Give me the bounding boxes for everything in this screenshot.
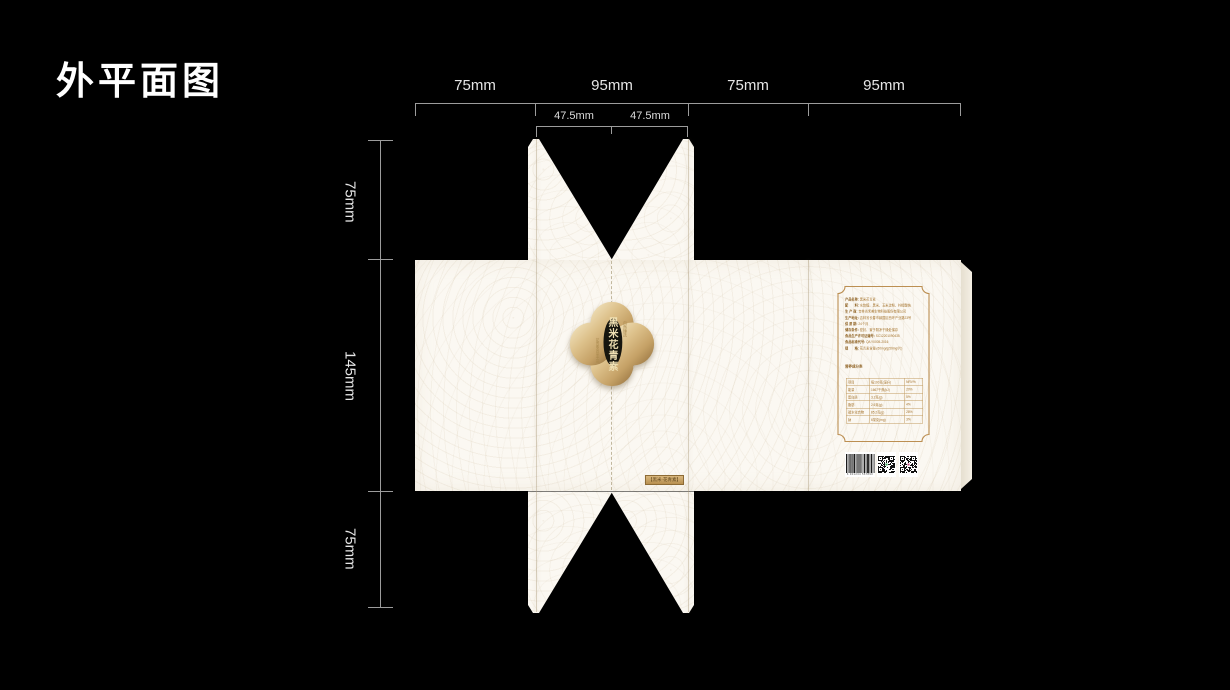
sub-ruler-line xyxy=(536,126,688,127)
table-cell: 能量 xyxy=(846,386,869,394)
table-cell: 28% xyxy=(904,408,922,416)
info-value: 吉林省禾美生物科技股份有限公司 xyxy=(858,310,906,314)
info-value: SC12201090435 xyxy=(876,335,900,339)
info-label: 规 格: xyxy=(845,347,859,351)
table-cell: 2.6克(g) xyxy=(869,401,904,409)
qr-code-icon xyxy=(899,452,918,477)
info-value: 水饴糖、黑米、玉米淀粉、柠檬酸钠 xyxy=(860,304,911,308)
sub-ruler-tick xyxy=(536,126,537,137)
info-value: 花青素含量≥50mg/g(50mg/片) xyxy=(860,347,903,351)
info-label: 配 料: xyxy=(845,304,859,308)
logo-product-name: 黑米花青素 xyxy=(603,316,620,372)
dim-label-47-5mm: 47.5mm xyxy=(620,110,680,122)
info-value: 24个月 xyxy=(858,322,868,326)
top-flap-right-triangle xyxy=(611,139,694,261)
dim-label-145mm-left: 145mm xyxy=(340,340,360,412)
info-value: 密封、置于阴凉干燥处保存 xyxy=(860,329,898,333)
fold-line xyxy=(688,139,689,612)
bottom-flap-left-triangle xyxy=(528,490,613,613)
info-label: 保 质 期: xyxy=(845,322,857,326)
glue-flap xyxy=(961,262,972,489)
table-cell: 项目 xyxy=(846,378,869,386)
table-cell: NRV% xyxy=(904,378,922,386)
top-ruler-tick xyxy=(960,103,961,116)
front-bottom-gold-label: 【黑米·花青素】 xyxy=(645,475,684,485)
table-cell: 3.2克(g) xyxy=(869,393,904,401)
dim-label-95mm: 95mm xyxy=(844,77,924,94)
sub-ruler-tick xyxy=(611,126,612,134)
dieline-proof-sheet: 外平面图 75mm 95mm 75mm 95mm 47.5mm 47.5mm 7… xyxy=(0,0,1230,690)
product-info-block: 产品名称: 黑米花青素 配 料: 水饴糖、黑米、玉米淀粉、柠檬酸钠 生 产 商:… xyxy=(845,297,925,357)
info-value: Q/LY0005-2016 xyxy=(866,341,888,345)
dim-label-75mm: 75mm xyxy=(708,77,788,94)
left-ruler-tick xyxy=(368,607,393,608)
info-label: 储存条件: xyxy=(845,329,859,333)
table-cell: 蛋白质 xyxy=(846,393,869,401)
logo-side-text-left: 花青素含量丰富 xyxy=(596,338,600,368)
info-label: 生产地址: xyxy=(845,316,859,320)
info-value: 吉林省长春市绿园区西环产业路23号 xyxy=(860,316,911,320)
barcode-bars-icon xyxy=(845,454,875,473)
fold-line xyxy=(536,139,537,612)
table-row: 能量 1667千焦(kJ) 20% xyxy=(846,386,923,394)
dim-label-75mm-left: 75mm xyxy=(340,517,360,581)
left-ruler-tick xyxy=(368,491,393,492)
left-ruler-tick xyxy=(368,259,393,260)
table-row: 蛋白质 3.2克(g) 5% xyxy=(846,393,923,401)
sub-ruler-tick xyxy=(687,126,688,137)
table-row: 脂肪 2.6克(g) 4% xyxy=(846,401,923,409)
nutrition-title-wrap: 营养成分表 xyxy=(845,364,1005,374)
info-label: 生 产 商: xyxy=(845,310,857,314)
top-ruler-tick xyxy=(808,103,809,116)
table-cell: 85.2克(g) xyxy=(869,408,904,416)
info-line: 规 格: 花青素含量≥50mg/g(50mg/片) xyxy=(845,346,930,352)
table-cell: 5% xyxy=(904,393,922,401)
table-cell: 1667千焦(kJ) xyxy=(869,386,904,394)
top-ruler-tick xyxy=(688,103,689,116)
dim-label-95mm: 95mm xyxy=(572,77,652,94)
table-cell: 6毫克(mg) xyxy=(869,416,904,424)
dim-label-75mm: 75mm xyxy=(435,77,515,94)
table-cell: 4% xyxy=(904,401,922,409)
fold-line xyxy=(808,260,809,491)
left-ruler-tick xyxy=(368,140,393,141)
nutrition-title: 营养成分表 xyxy=(845,364,925,369)
table-row: 钠 6毫克(mg) 3% xyxy=(846,416,923,424)
barcode-digits: 6 901234 567890 xyxy=(845,473,875,476)
info-label: 食品标准代号: xyxy=(845,341,865,345)
top-flap-left-triangle xyxy=(528,139,613,261)
info-label: 食品生产许可证编号: xyxy=(845,335,875,339)
table-cell: 脂肪 xyxy=(846,401,869,409)
top-ruler-tick xyxy=(415,103,416,116)
table-cell: 钠 xyxy=(846,416,869,424)
left-ruler-line xyxy=(380,140,381,608)
table-cell: 20% xyxy=(904,386,922,394)
table-cell: 3% xyxy=(904,416,922,424)
nutrition-table: 项目 每100克(毫升) NRV% 能量 1667千焦(kJ) 20% 蛋白质 … xyxy=(846,378,923,424)
page-title: 外平面图 xyxy=(56,50,224,105)
nutrition-table-wrap: 项目 每100克(毫升) NRV% 能量 1667千焦(kJ) 20% 蛋白质 … xyxy=(846,378,924,428)
table-cell: 每100克(毫升) xyxy=(869,378,904,386)
barcode: 6 901234 567890 xyxy=(845,452,875,477)
info-label: 产品名称: xyxy=(845,298,859,302)
bottom-flap-right-triangle xyxy=(611,490,694,613)
dim-label-47-5mm: 47.5mm xyxy=(544,110,604,122)
dim-label-75mm-left: 75mm xyxy=(340,170,360,234)
table-row: 碳水化合物 85.2克(g) 28% xyxy=(846,408,923,416)
logo-side-text-right: 自然臻选 xyxy=(623,321,627,345)
info-value: 黑米花青素 xyxy=(860,298,876,302)
top-ruler-tick xyxy=(535,103,536,116)
table-row: 项目 每100克(毫升) NRV% xyxy=(846,378,923,386)
table-cell: 碳水化合物 xyxy=(846,408,869,416)
qr-code-icon xyxy=(877,452,896,477)
